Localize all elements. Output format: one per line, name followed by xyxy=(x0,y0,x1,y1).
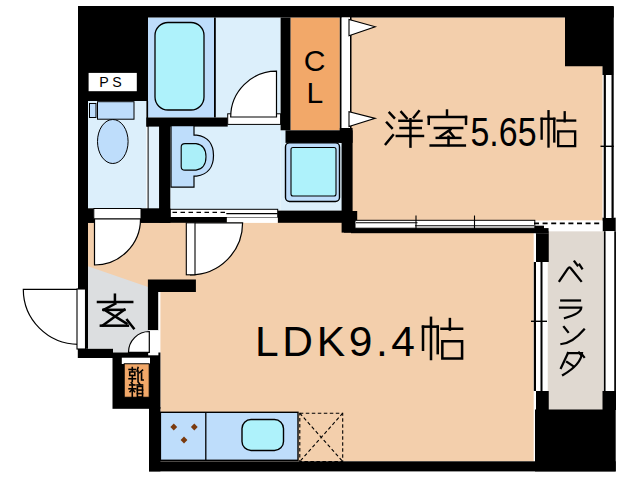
svg-text:5.65: 5.65 xyxy=(471,109,537,155)
svg-text:L: L xyxy=(306,76,323,109)
svg-text:PS: PS xyxy=(99,74,125,90)
svg-text:C: C xyxy=(304,44,326,77)
